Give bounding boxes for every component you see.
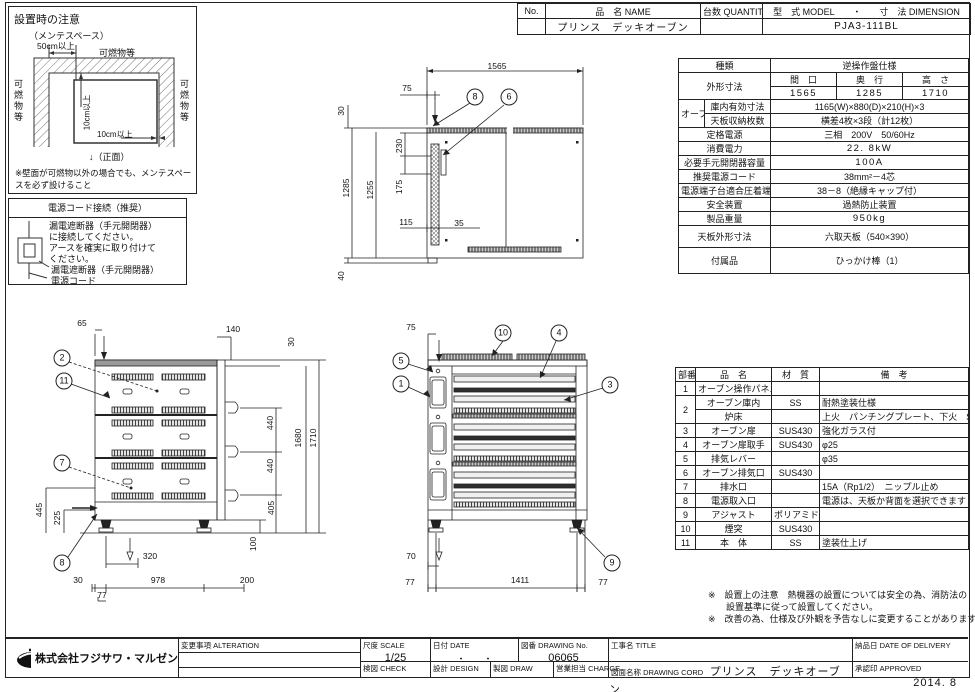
terminal-label: 電源端子台適合圧着端子 bbox=[679, 184, 771, 198]
cord-spec-value: 38mm²－4芯 bbox=[771, 170, 969, 184]
drawing-no-cell: 図番 DRAWING No. 06065 bbox=[518, 638, 608, 661]
breaker-capacity-label: 必要手元開閉器容量 bbox=[679, 156, 771, 170]
table-cell: 排水口 bbox=[696, 480, 772, 494]
power-cord-box: 電源コード接続（推奨） 漏電遮断器（手元開閉器） に接続してください。 アースを… bbox=[8, 198, 187, 285]
rated-power-label: 定格電源 bbox=[679, 128, 771, 142]
parts-table-body: 1オーブン操作パネル2オーブン庫内SS耐熱塗装仕様炉床上火 パンチングプレート、… bbox=[676, 382, 969, 550]
dim-65: 65 bbox=[77, 319, 86, 328]
table-cell: 強化ガラス付 bbox=[820, 424, 969, 438]
dim-100: 100 bbox=[249, 537, 258, 551]
table-cell bbox=[772, 452, 820, 466]
scale-cell: 尺度 SCALE 1/25 bbox=[360, 638, 430, 661]
alteration-row-2 bbox=[179, 667, 360, 682]
dim-77: 77 bbox=[97, 591, 106, 600]
table-row: 1オーブン操作パネル bbox=[676, 382, 969, 396]
balloon-9: 9 bbox=[604, 555, 621, 572]
drawing-no-label: 図番 DRAWING No. bbox=[519, 639, 608, 652]
safety-value: 過熱防止装置 bbox=[771, 198, 969, 212]
breaker-capacity-value: 100A bbox=[771, 156, 969, 170]
table-cell: φ25 bbox=[820, 438, 969, 452]
no-header: No. bbox=[518, 4, 546, 19]
table-row: 6オーブン排気口SUS430 bbox=[676, 466, 969, 480]
oven-label: オーブン bbox=[679, 100, 705, 128]
dim-1255: 1255 bbox=[366, 181, 375, 200]
title-block: 株式会社フジサワ・マルゼン 変更事項 ALTERATION 尺度 SCALE 1… bbox=[5, 637, 968, 677]
plan-view-drawing: 1565753023012851255175115354086 bbox=[330, 45, 675, 295]
dim-115: 115 bbox=[399, 218, 413, 227]
table-cell bbox=[820, 466, 969, 480]
dim-70: 70 bbox=[406, 552, 415, 561]
model-header: 型 式 MODEL ・ 寸 法 DIMENSION bbox=[763, 4, 971, 19]
install-caution-box: 設置時の注意 （メンテスペース） 50cm以上 可燃物等 可燃物等 可燃物等 1… bbox=[8, 6, 197, 194]
balloon-11: 11 bbox=[56, 373, 73, 390]
drawing-name-label: 図面名称 DRAWING CORD bbox=[609, 666, 705, 679]
depth-label: 奥 行 bbox=[837, 73, 903, 87]
wall-note-line2: を必ず設けること bbox=[15, 179, 92, 191]
table-cell: アジャスト bbox=[696, 508, 772, 522]
table-cell: 電源取入口 bbox=[696, 494, 772, 508]
balloon-10: 10 bbox=[495, 325, 512, 342]
height-value: 1710 bbox=[903, 87, 969, 100]
table-cell bbox=[772, 410, 820, 424]
dim-405: 405 bbox=[267, 501, 276, 515]
width-value: 1565 bbox=[771, 87, 837, 100]
table-cell: 塗装仕上げ bbox=[820, 536, 969, 550]
dim-30: 30 bbox=[73, 576, 82, 585]
cord-label: 電源コード bbox=[51, 274, 96, 287]
front-view-drawing: 7570771411771045139 bbox=[380, 290, 680, 602]
kind-value: 逆操作盤仕様 bbox=[771, 59, 969, 73]
dim-140: 140 bbox=[226, 325, 240, 334]
balloon-2: 2 bbox=[54, 350, 71, 367]
dim-320: 320 bbox=[143, 552, 157, 561]
table-cell: 15A（Rp1/2） ニップル止め bbox=[820, 480, 969, 494]
date-cell: 日付 DATE ・ ・ bbox=[430, 638, 518, 661]
approved-cell: 承認印 APPROVED bbox=[852, 661, 968, 677]
dim-77: 77 bbox=[405, 578, 414, 587]
balloon-8: 8 bbox=[467, 89, 484, 106]
project-title-cell: 工事名 TITLE bbox=[608, 638, 852, 661]
alteration-row-1 bbox=[179, 652, 360, 667]
table-row: 9アジャストポリアミド bbox=[676, 508, 969, 522]
table-cell: 煙突 bbox=[696, 522, 772, 536]
table-cell: SUS430 bbox=[772, 466, 820, 480]
table-cell bbox=[820, 382, 969, 396]
combustible-left-label: 可燃物等 bbox=[12, 79, 25, 123]
kind-label: 種類 bbox=[679, 59, 771, 73]
table-row: 10煙突SUS430 bbox=[676, 522, 969, 536]
table-cell: 本 体 bbox=[696, 536, 772, 550]
table-cell bbox=[772, 494, 820, 508]
parts-header-material: 材 質 bbox=[772, 368, 820, 382]
dim-1565: 1565 bbox=[488, 62, 507, 71]
product-name: プリンス デッキオーブン bbox=[546, 19, 701, 35]
model-table: No. 品 名 NAME 台数 QUANTITY 型 式 MODEL ・ 寸 法… bbox=[517, 3, 971, 35]
plan-view-linework bbox=[330, 45, 675, 295]
tray-dim-value: 六取天板（540×390） bbox=[771, 226, 969, 248]
drawing-sheet: No. 品 名 NAME 台数 QUANTITY 型 式 MODEL ・ 寸 法… bbox=[0, 0, 975, 692]
delivery-cell: 納品日 DATE OF DELIVERY bbox=[852, 638, 968, 661]
table-cell: ポリアミド bbox=[772, 508, 820, 522]
model-value: PJA3-111BL bbox=[763, 19, 971, 35]
table-cell: 電源は、天板か背面を選択できます bbox=[820, 494, 969, 508]
dim-200: 200 bbox=[240, 576, 254, 585]
dim-445: 445 bbox=[35, 503, 44, 517]
company-logo bbox=[15, 646, 31, 670]
accessory-label: 付属品 bbox=[679, 248, 771, 274]
spec-table: 種類 逆操作盤仕様 外形寸法 間 口 奥 行 高 さ 1565 1285 171… bbox=[678, 58, 969, 274]
dim-978: 978 bbox=[151, 576, 165, 585]
rated-power-value: 三相 200V 50/60Hz bbox=[771, 128, 969, 142]
table-row: 8電源取入口電源は、天板か背面を選択できます bbox=[676, 494, 969, 508]
table-row: 7排水口15A（Rp1/2） ニップル止め bbox=[676, 480, 969, 494]
dim-30: 30 bbox=[287, 337, 296, 346]
alteration-cell: 変更事項 ALTERATION bbox=[178, 638, 360, 677]
table-cell: オーブン扉取手 bbox=[696, 438, 772, 452]
space-50cm-label: 50cm以上 bbox=[37, 40, 75, 52]
name-header: 品 名 NAME bbox=[546, 4, 701, 19]
table-cell: オーブン排気口 bbox=[696, 466, 772, 480]
install-title: 設置時の注意 bbox=[14, 11, 80, 27]
balloon-4: 4 bbox=[551, 325, 568, 342]
consumption-value: 22. 8kW bbox=[771, 142, 969, 156]
dim-225: 225 bbox=[53, 511, 62, 525]
dim-230: 230 bbox=[395, 139, 404, 153]
weight-value: 950kg bbox=[771, 212, 969, 226]
check-cell: 検図 CHECK bbox=[360, 661, 430, 677]
table-cell bbox=[772, 480, 820, 494]
table-cell bbox=[772, 382, 820, 396]
note-line-3: ※ 改善の為、仕様及び外観を予告なしに変更することがあります。 bbox=[708, 612, 975, 625]
balloon-8: 8 bbox=[54, 555, 71, 572]
table-row: 2オーブン庫内SS耐熱塗装仕様 bbox=[676, 396, 969, 410]
parts-table: 部番 品 名 材 質 備 考 1オーブン操作パネル2オーブン庫内SS耐熱塗装仕様… bbox=[675, 367, 969, 550]
table-row: 5排気レバーφ35 bbox=[676, 452, 969, 466]
balloon-3: 3 bbox=[602, 377, 619, 394]
qty-value bbox=[701, 19, 763, 35]
design-cell: 設計 DESIGN bbox=[430, 661, 490, 677]
front-direction-label: ↓（正面） bbox=[89, 150, 130, 163]
table-cell: SUS430 bbox=[772, 438, 820, 452]
table-cell bbox=[820, 522, 969, 536]
scale-label: 尺度 SCALE bbox=[361, 639, 430, 652]
combustible-top-label: 可燃物等 bbox=[99, 46, 135, 59]
inner-dim-label: 庫内有効寸法 bbox=[705, 100, 771, 114]
table-cell: オーブン操作パネル bbox=[696, 382, 772, 396]
dim-175: 175 bbox=[395, 180, 404, 194]
alteration-label: 変更事項 ALTERATION bbox=[179, 639, 360, 652]
parts-header-remarks: 備 考 bbox=[820, 368, 969, 382]
table-cell: オーブン庫内 bbox=[696, 396, 772, 410]
front-view-linework bbox=[380, 290, 680, 602]
rear-view-drawing: 6514030445225440440168017104051003203097… bbox=[20, 290, 340, 602]
table-row: 炉床上火 パンチングプレート、下火 SS bbox=[676, 410, 969, 424]
consumption-label: 消費電力 bbox=[679, 142, 771, 156]
approved-label: 承認印 APPROVED bbox=[853, 662, 968, 675]
dim-30: 30 bbox=[337, 106, 346, 115]
table-cell: オーブン扉 bbox=[696, 424, 772, 438]
dim-75: 75 bbox=[406, 323, 415, 332]
date-label: 日付 DATE bbox=[431, 639, 518, 652]
depth-value: 1285 bbox=[837, 87, 903, 100]
dim-35: 35 bbox=[454, 219, 463, 228]
company-cell: 株式会社フジサワ・マルゼン bbox=[5, 638, 178, 677]
drawing-no-value: 06065 bbox=[519, 652, 608, 664]
table-cell: 上火 パンチングプレート、下火 SS bbox=[820, 410, 969, 424]
dim-440: 440 bbox=[266, 416, 275, 430]
dim-40: 40 bbox=[337, 271, 346, 280]
delivery-label: 納品日 DATE OF DELIVERY bbox=[853, 639, 968, 652]
drawing-name-cell: 図面名称 DRAWING CORD プリンス デッキオーブン bbox=[608, 661, 852, 677]
check-label: 検図 CHECK bbox=[361, 662, 430, 675]
combustible-right-label: 可燃物等 bbox=[178, 79, 191, 123]
table-cell: SS bbox=[772, 536, 820, 550]
qty-header: 台数 QUANTITY bbox=[701, 4, 763, 19]
table-cell: φ35 bbox=[820, 452, 969, 466]
safety-label: 安全装置 bbox=[679, 198, 771, 212]
inner-dim-value: 1165(W)×880(D)×210(H)×3 bbox=[771, 100, 969, 114]
table-row: 11本 体SS塗装仕上げ bbox=[676, 536, 969, 550]
weight-label: 製品重量 bbox=[679, 212, 771, 226]
dim-77: 77 bbox=[598, 578, 607, 587]
dim-1710: 1710 bbox=[309, 429, 318, 448]
height-label: 高 さ bbox=[903, 73, 969, 87]
accessory-value: ひっかけ棒（1） bbox=[771, 248, 969, 274]
dim-1680: 1680 bbox=[294, 429, 303, 448]
dim-1411: 1411 bbox=[511, 576, 529, 585]
table-row: 3オーブン扉SUS430強化ガラス付 bbox=[676, 424, 969, 438]
balloon-6: 6 bbox=[501, 89, 518, 106]
project-title-label: 工事名 TITLE bbox=[609, 639, 852, 652]
power-box-title: 電源コード接続（推奨） bbox=[9, 201, 186, 218]
table-cell: 耐熱塗装仕様 bbox=[820, 396, 969, 410]
design-label: 設計 DESIGN bbox=[431, 662, 490, 675]
parts-header-name: 品 名 bbox=[696, 368, 772, 382]
table-cell bbox=[820, 508, 969, 522]
terminal-value: 38－8（絶縁キャップ付） bbox=[771, 184, 969, 198]
table-cell: 排気レバー bbox=[696, 452, 772, 466]
dim-1285: 1285 bbox=[342, 179, 351, 198]
company-name: 株式会社フジサワ・マルゼン bbox=[35, 650, 178, 666]
clearance-10cm-vertical: 10cm以上 bbox=[81, 95, 92, 131]
balloon-7: 7 bbox=[54, 455, 71, 472]
table-cell: SUS430 bbox=[772, 522, 820, 536]
tray-count-label: 天板収納枚数 bbox=[705, 114, 771, 128]
tray-dim-label: 天板外形寸法 bbox=[679, 226, 771, 248]
dim-440: 440 bbox=[266, 459, 275, 473]
outer-dim-label: 外形寸法 bbox=[679, 73, 771, 100]
balloon-5: 5 bbox=[393, 353, 410, 370]
table-row: 4オーブン扉取手SUS430φ25 bbox=[676, 438, 969, 452]
no-value bbox=[518, 19, 546, 35]
width-label: 間 口 bbox=[771, 73, 837, 87]
balloon-1: 1 bbox=[393, 376, 410, 393]
tray-count-value: 横差4枚×3段（計12枚） bbox=[771, 114, 969, 128]
table-cell: SS bbox=[772, 396, 820, 410]
cord-spec-label: 推奨電源コード bbox=[679, 170, 771, 184]
table-cell: 炉床 bbox=[696, 410, 772, 424]
table-cell: SUS430 bbox=[772, 424, 820, 438]
issue-date: 2014. 8 bbox=[913, 677, 957, 689]
clearance-10cm-horizontal: 10cm以上 bbox=[97, 129, 133, 140]
dim-75: 75 bbox=[402, 84, 411, 93]
